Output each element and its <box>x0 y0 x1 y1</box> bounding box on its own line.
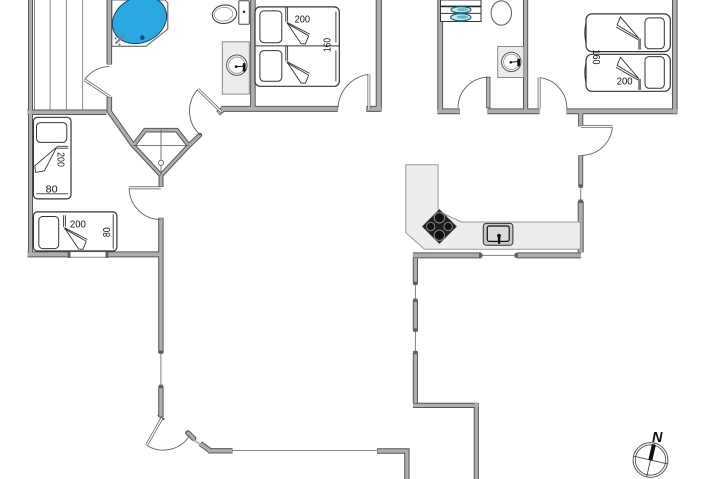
svg-text:80: 80 <box>46 184 58 195</box>
svg-text:200: 200 <box>295 15 311 26</box>
svg-text:160: 160 <box>323 38 334 52</box>
svg-text:N: N <box>652 430 663 446</box>
svg-text:80: 80 <box>102 227 113 237</box>
svg-text:200: 200 <box>617 75 633 87</box>
svg-text:160: 160 <box>590 50 602 65</box>
svg-text:200: 200 <box>55 152 66 167</box>
svg-text:200: 200 <box>70 220 86 231</box>
